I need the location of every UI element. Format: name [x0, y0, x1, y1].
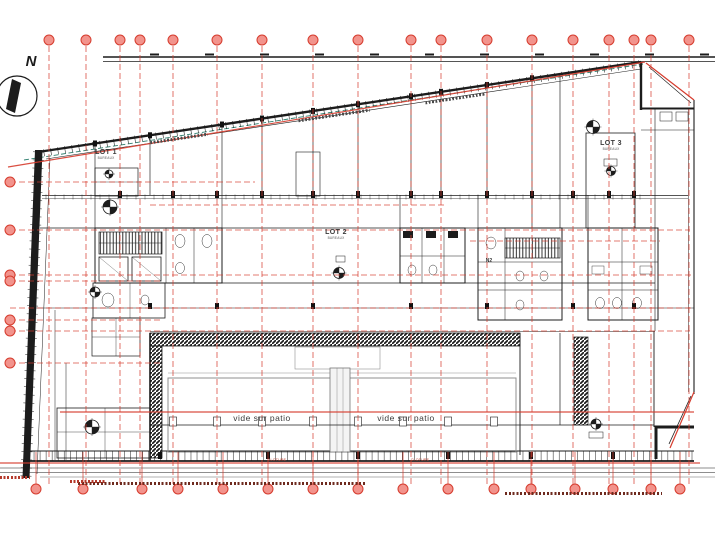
generated-detail [21, 60, 692, 476]
fence-label-left: CLOTURE [268, 459, 287, 463]
survey-marker-wedge [593, 127, 600, 134]
grid-bubble [604, 35, 614, 45]
survey-marker-wedge [591, 419, 596, 424]
grid-bubble [137, 484, 147, 494]
column-marker [158, 452, 162, 459]
survey-marker-icon [88, 285, 102, 299]
plan-linework [0, 0, 715, 536]
grid-bubble [44, 35, 54, 45]
column-marker [220, 122, 224, 128]
boundary-note [0, 476, 30, 479]
note-line-right [505, 492, 662, 495]
pilaster-marker [491, 417, 498, 426]
grid-bubble [212, 35, 222, 45]
survey-marker-icon [605, 165, 618, 178]
grid-bubble [308, 484, 318, 494]
grid-bubble [218, 484, 228, 494]
survey-marker-wedge [90, 287, 95, 292]
survey-marker-icon [103, 168, 115, 180]
lot1-subtitle: BUREAUX [95, 157, 117, 161]
survey-marker-wedge [105, 170, 109, 174]
survey-marker-wedge [109, 174, 113, 178]
grid-bubble [5, 225, 15, 235]
grid-bubble [168, 35, 178, 45]
grid-bubble [81, 35, 91, 45]
grid-bubble [398, 484, 408, 494]
column-marker [93, 140, 97, 146]
core-n2 [478, 228, 562, 320]
survey-marker-wedge [587, 121, 594, 128]
survey-marker-icon [332, 266, 347, 281]
lot1-label: LOT 1 BUREAUX [95, 149, 117, 160]
column-marker [148, 132, 152, 138]
floor-plan-sheet: N LOT 1 BUREAUX LOT 2 BUREAUX LOT 3 BURE… [0, 0, 715, 536]
grid-bubble [675, 484, 685, 494]
grid-bubble [5, 276, 15, 286]
survey-marker-wedge [596, 424, 601, 429]
grid-bubble [353, 484, 363, 494]
survey-marker-wedge [110, 207, 117, 214]
grid-bubble [308, 35, 318, 45]
survey-marker-wedge [92, 427, 99, 434]
grid-bubble [5, 315, 15, 325]
grid-bubble [489, 484, 499, 494]
core-lot3 [588, 228, 658, 320]
grid-bubble [135, 35, 145, 45]
survey-marker-icon [589, 417, 603, 431]
lot2-subtitle: BUREAUX [325, 237, 347, 241]
grid-bubble [629, 35, 639, 45]
lot2-label: LOT 2 BUREAUX [325, 229, 347, 240]
grid-bubble [263, 484, 273, 494]
grid-bubble [173, 484, 183, 494]
lot3-subtitle: BUREAUX [600, 148, 622, 152]
grid-bubble [257, 35, 267, 45]
survey-marker-wedge [339, 273, 345, 279]
grid-bubble [5, 326, 15, 336]
grid-bubble [482, 35, 492, 45]
grid-bubble [5, 358, 15, 368]
grid-bubble [684, 35, 694, 45]
grid-bubble [31, 484, 41, 494]
survey-marker-wedge [103, 200, 110, 207]
core-n2-label: N2 [486, 259, 492, 265]
grid-bubble [406, 35, 416, 45]
survey-marker-wedge [611, 171, 616, 176]
grid-bubble [646, 35, 656, 45]
building-outline [0, 55, 715, 479]
patio-void [150, 331, 654, 461]
corner-chamfer-line [670, 392, 694, 448]
facade-chamfer-line [646, 63, 694, 100]
grid-bubble [568, 35, 578, 45]
grid-bubble [353, 35, 363, 45]
fence-label-right: CLOTURE [411, 459, 430, 463]
compass-north-label: N [26, 54, 37, 71]
grid-bubble [436, 35, 446, 45]
patio-label-left: vide sur patio [233, 414, 291, 423]
grid-bubble [443, 484, 453, 494]
survey-marker-icon [101, 198, 119, 216]
pilaster-marker [445, 417, 452, 426]
lot3-label: LOT 3 BUREAUX [600, 140, 622, 151]
grid-bubble [115, 35, 125, 45]
grid-bubble [5, 177, 15, 187]
note-line-left [78, 482, 365, 485]
north-compass-icon [0, 76, 37, 116]
grid-bubble [78, 484, 88, 494]
patio-label-right: vide sur patio [377, 414, 435, 423]
grid-bubble [527, 35, 537, 45]
boundary-note [70, 480, 106, 483]
survey-marker-wedge [95, 292, 100, 297]
survey-marker-wedge [334, 268, 340, 274]
